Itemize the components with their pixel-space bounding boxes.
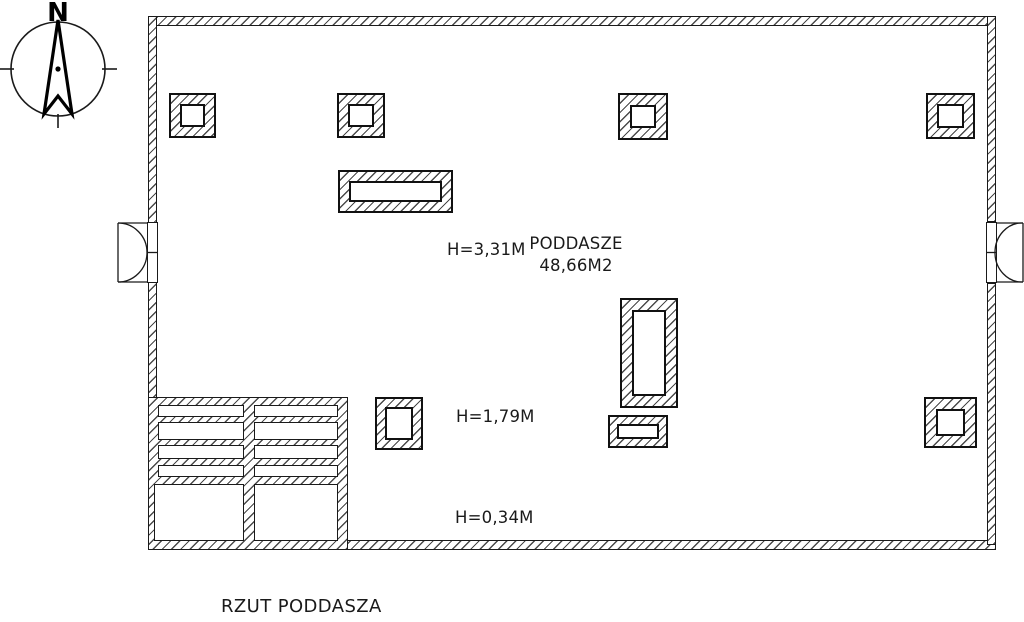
chimney-core xyxy=(630,105,656,128)
stair-well xyxy=(154,484,244,541)
wall-right-lower xyxy=(987,283,996,545)
wall-right-upper xyxy=(987,16,996,222)
room-name: PODDASZE xyxy=(520,233,632,255)
stair-slot xyxy=(254,405,338,417)
wall-left-upper xyxy=(148,16,157,223)
stair-well xyxy=(254,484,338,541)
chimney-bottom-mid-left xyxy=(375,397,423,450)
stair-slot xyxy=(158,465,244,477)
stair-slot xyxy=(254,445,338,459)
duct-core xyxy=(617,424,659,439)
height-label-mid: H=1,79M xyxy=(456,407,535,426)
room-area: 48,66M2 xyxy=(520,255,632,277)
stair-slot xyxy=(158,405,244,417)
chimney-bottom-right xyxy=(924,397,977,448)
chimney-top-left xyxy=(169,93,216,138)
duct-wide-top xyxy=(338,170,453,213)
chimney-core xyxy=(937,104,964,128)
duct-small-center xyxy=(608,415,668,448)
chimney-core xyxy=(385,407,413,440)
stair-slot xyxy=(254,422,338,440)
chimney-top-mid-left xyxy=(337,93,385,138)
wall-top xyxy=(148,16,996,26)
chimney-core xyxy=(348,104,374,127)
room-name-and-area: PODDASZE 48,66M2 xyxy=(520,233,632,277)
chimney-top-center xyxy=(618,93,668,140)
compass-rose: N xyxy=(0,0,124,134)
duct-tall-center xyxy=(620,298,678,408)
chimney-core xyxy=(936,409,965,436)
compass-center-dot xyxy=(55,66,60,71)
floor-plan-drawing: N xyxy=(0,0,1024,622)
chimney-top-right xyxy=(926,93,975,139)
drawing-title: RZUT PODDASZA xyxy=(221,596,382,617)
stair-slot xyxy=(254,465,338,477)
window-swing-right xyxy=(964,218,1024,288)
stair-slot xyxy=(158,445,244,459)
window-swing-left xyxy=(114,218,160,288)
duct-core xyxy=(349,181,442,202)
duct-core xyxy=(632,310,666,396)
stair-slot xyxy=(158,422,244,440)
chimney-core xyxy=(180,104,205,127)
height-label-low: H=0,34M xyxy=(455,508,534,527)
height-label-upper: H=3,31M xyxy=(447,240,526,259)
compass-north-label: N xyxy=(47,0,69,28)
